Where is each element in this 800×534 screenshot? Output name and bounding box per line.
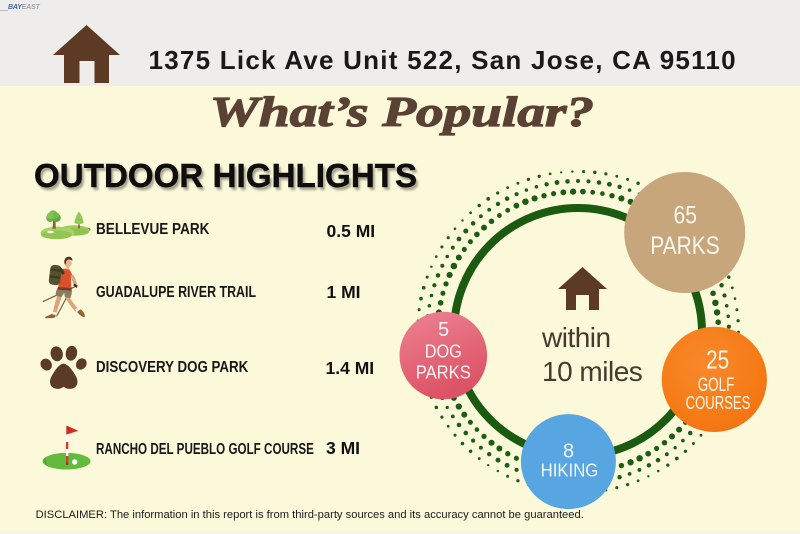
svg-text:COURSES: COURSES <box>686 393 751 413</box>
svg-text:HIKING: HIKING <box>541 460 599 481</box>
svg-text:PARKS: PARKS <box>650 232 720 260</box>
svg-text:5: 5 <box>438 319 449 341</box>
svg-text:65: 65 <box>674 201 697 229</box>
svg-text:25: 25 <box>706 345 729 375</box>
svg-text:PARKS: PARKS <box>416 362 471 383</box>
svg-text:DOG: DOG <box>425 340 462 361</box>
